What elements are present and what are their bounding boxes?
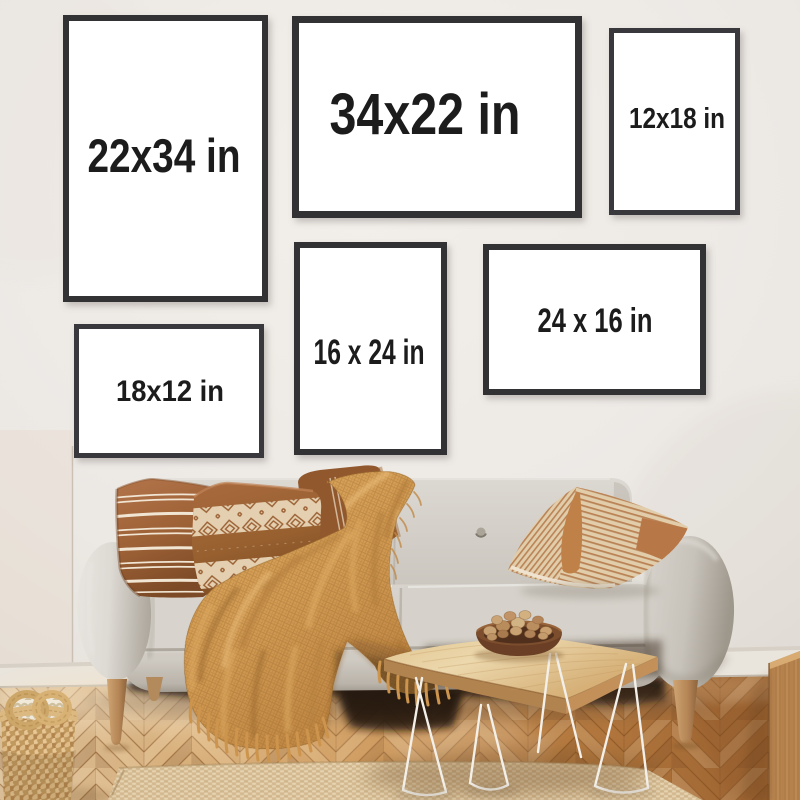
svg-text:18x12 in: 18x12 in (116, 375, 224, 408)
svg-text:12x18 in: 12x18 in (629, 103, 725, 135)
svg-text:22x34 in: 22x34 in (88, 129, 241, 182)
svg-text:34x22 in: 34x22 in (330, 82, 521, 147)
svg-text:16 x 24 in: 16 x 24 in (314, 333, 425, 372)
svg-text:24 x 16 in: 24 x 16 in (538, 302, 653, 340)
